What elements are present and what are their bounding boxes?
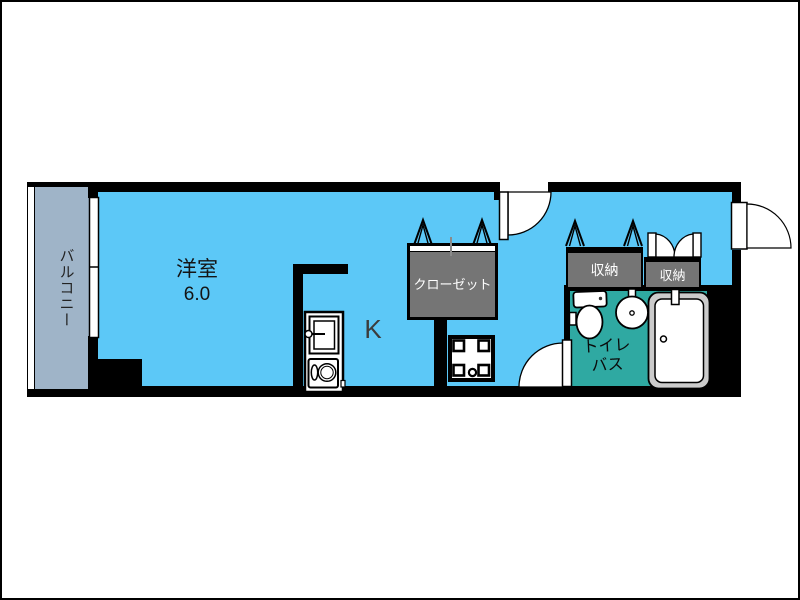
wall-closet-stub [434, 318, 447, 397]
wall-right-upper [732, 182, 741, 202]
wall-kitchen-horizontal [293, 264, 348, 274]
balcony-label: バルコニー [50, 233, 82, 343]
toilet-bath-label: トイレ バス [567, 335, 647, 377]
closet-label: クローゼット [407, 250, 498, 317]
balcony-railing [27, 186, 35, 392]
wall-bath-right-block [707, 285, 741, 397]
door-opening [500, 182, 548, 192]
wall-top-left [88, 182, 494, 192]
storage-right-label: 収納 [644, 262, 701, 287]
wall-top-right [548, 182, 741, 192]
wall-bottom [88, 386, 741, 397]
storage-left-label: 収納 [566, 253, 643, 287]
kitchen-label: K [356, 314, 390, 345]
floor-plan: バルコニー 洋室 6.0 K クローゼット 収納 収納 トイレ バス [0, 0, 800, 600]
wall-pillar [95, 359, 142, 392]
wall-balcony-top [27, 182, 95, 187]
wall-balcony-bottom [27, 389, 95, 397]
room-label: 洋室 6.0 [137, 257, 257, 307]
room-size: 6.0 [137, 282, 257, 307]
bath-label: バス [568, 354, 647, 377]
room-name: 洋室 [137, 257, 257, 282]
wall-kitchen-vertical [293, 264, 303, 397]
wall-left-upper [88, 182, 98, 198]
